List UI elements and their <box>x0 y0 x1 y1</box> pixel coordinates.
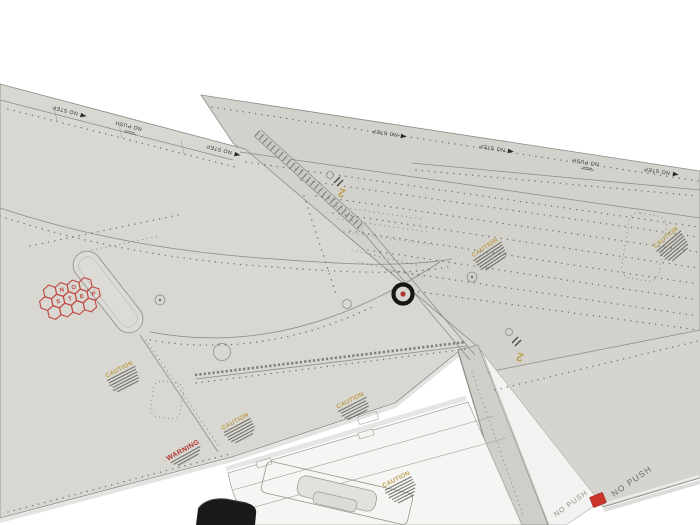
fuel-cap-marking <box>394 285 413 304</box>
product-photo: N O S T E P NO STEP NO PUSH NO STEP NO S… <box>0 0 700 525</box>
model-wing-photo: N O S T E P NO STEP NO PUSH NO STEP NO S… <box>0 0 700 525</box>
fuel-cap-red-dot <box>400 291 405 296</box>
